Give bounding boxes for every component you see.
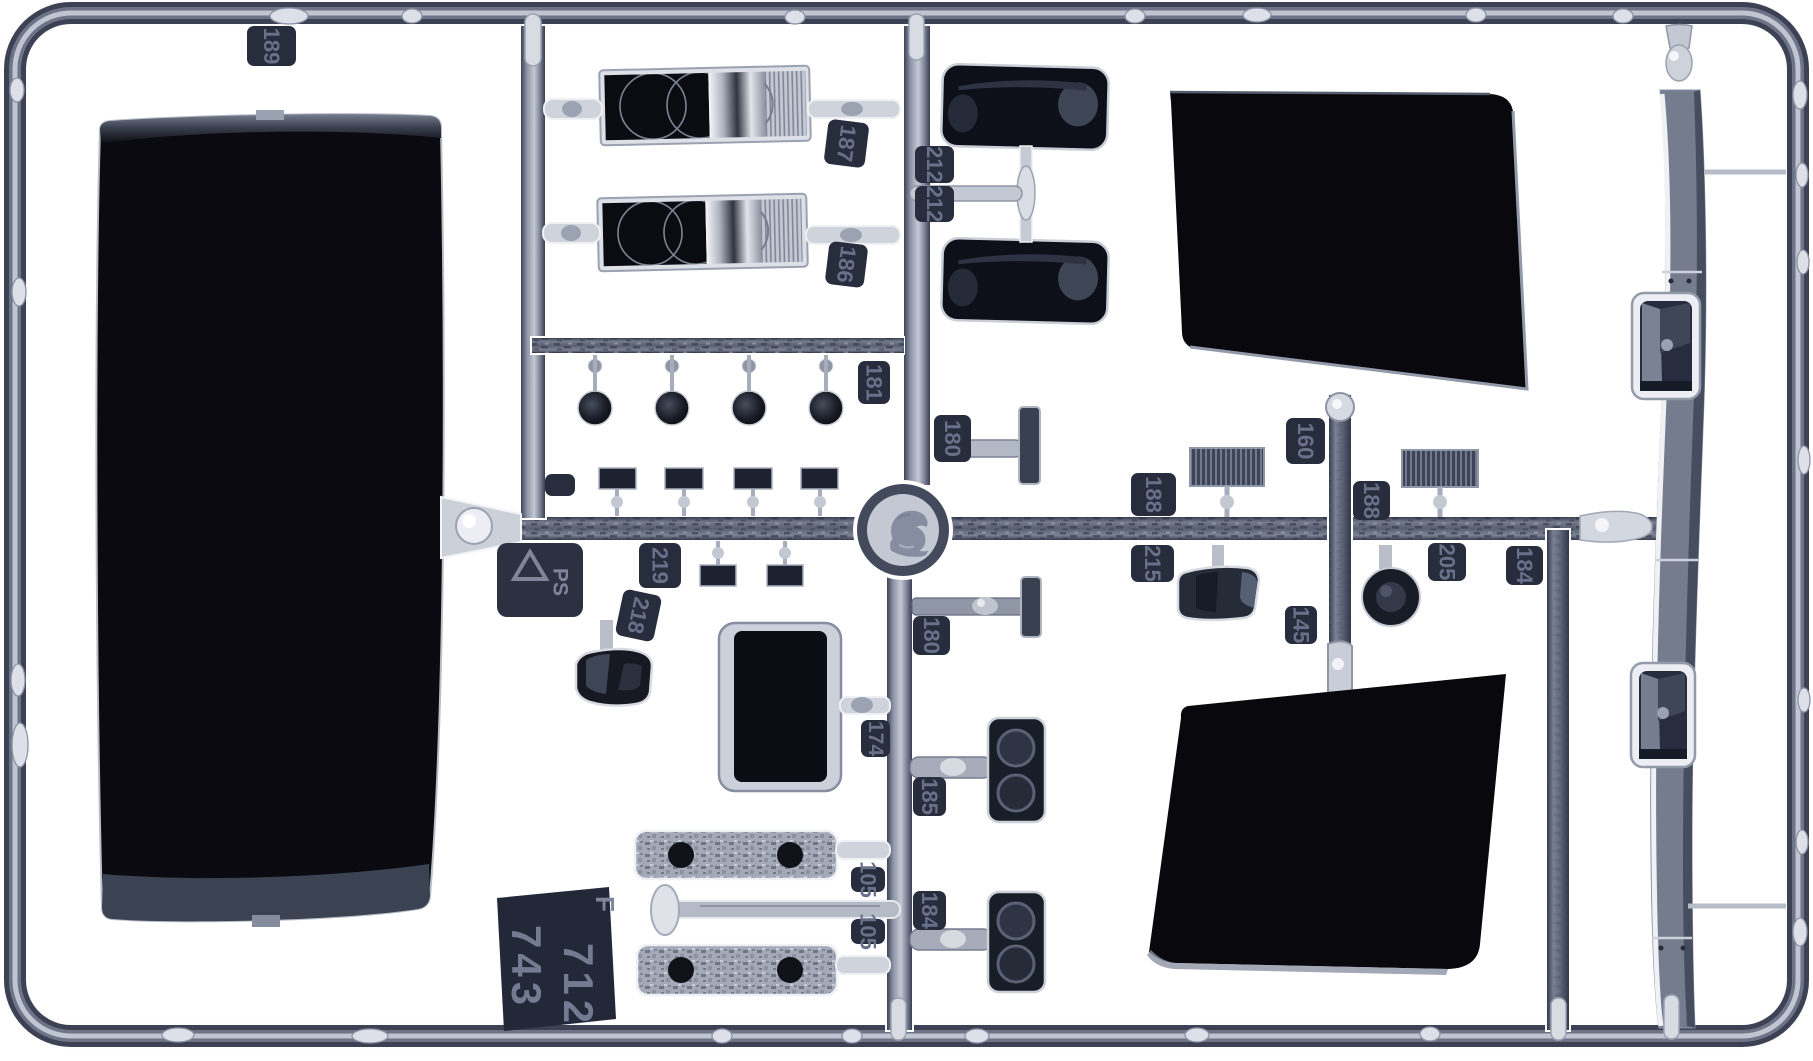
svg-text:184: 184: [1512, 547, 1537, 584]
svg-text:186: 186: [832, 245, 861, 284]
svg-text:180: 180: [919, 617, 944, 654]
svg-text:PS: PS: [549, 568, 572, 596]
svg-text:712: 712: [555, 943, 602, 1028]
svg-text:205: 205: [1435, 544, 1460, 581]
svg-text:160: 160: [1293, 423, 1318, 460]
svg-text:145: 145: [1289, 607, 1314, 644]
svg-text:105: 105: [856, 913, 881, 950]
svg-text:F: F: [590, 896, 620, 912]
svg-text:181: 181: [862, 364, 887, 401]
svg-text:219: 219: [648, 547, 673, 584]
svg-text:184: 184: [917, 892, 942, 929]
svg-text:185: 185: [917, 778, 942, 815]
svg-text:105: 105: [856, 861, 881, 898]
svg-text:212: 212: [922, 146, 947, 183]
svg-text:188: 188: [1141, 476, 1166, 513]
svg-text:174: 174: [864, 721, 887, 756]
svg-text:215: 215: [1140, 545, 1165, 582]
svg-text:189: 189: [259, 28, 284, 65]
svg-text:212: 212: [922, 186, 947, 223]
svg-text:743: 743: [503, 925, 550, 1010]
svg-text:188: 188: [1359, 482, 1384, 519]
svg-text:187: 187: [832, 124, 861, 163]
svg-text:180: 180: [940, 420, 965, 457]
